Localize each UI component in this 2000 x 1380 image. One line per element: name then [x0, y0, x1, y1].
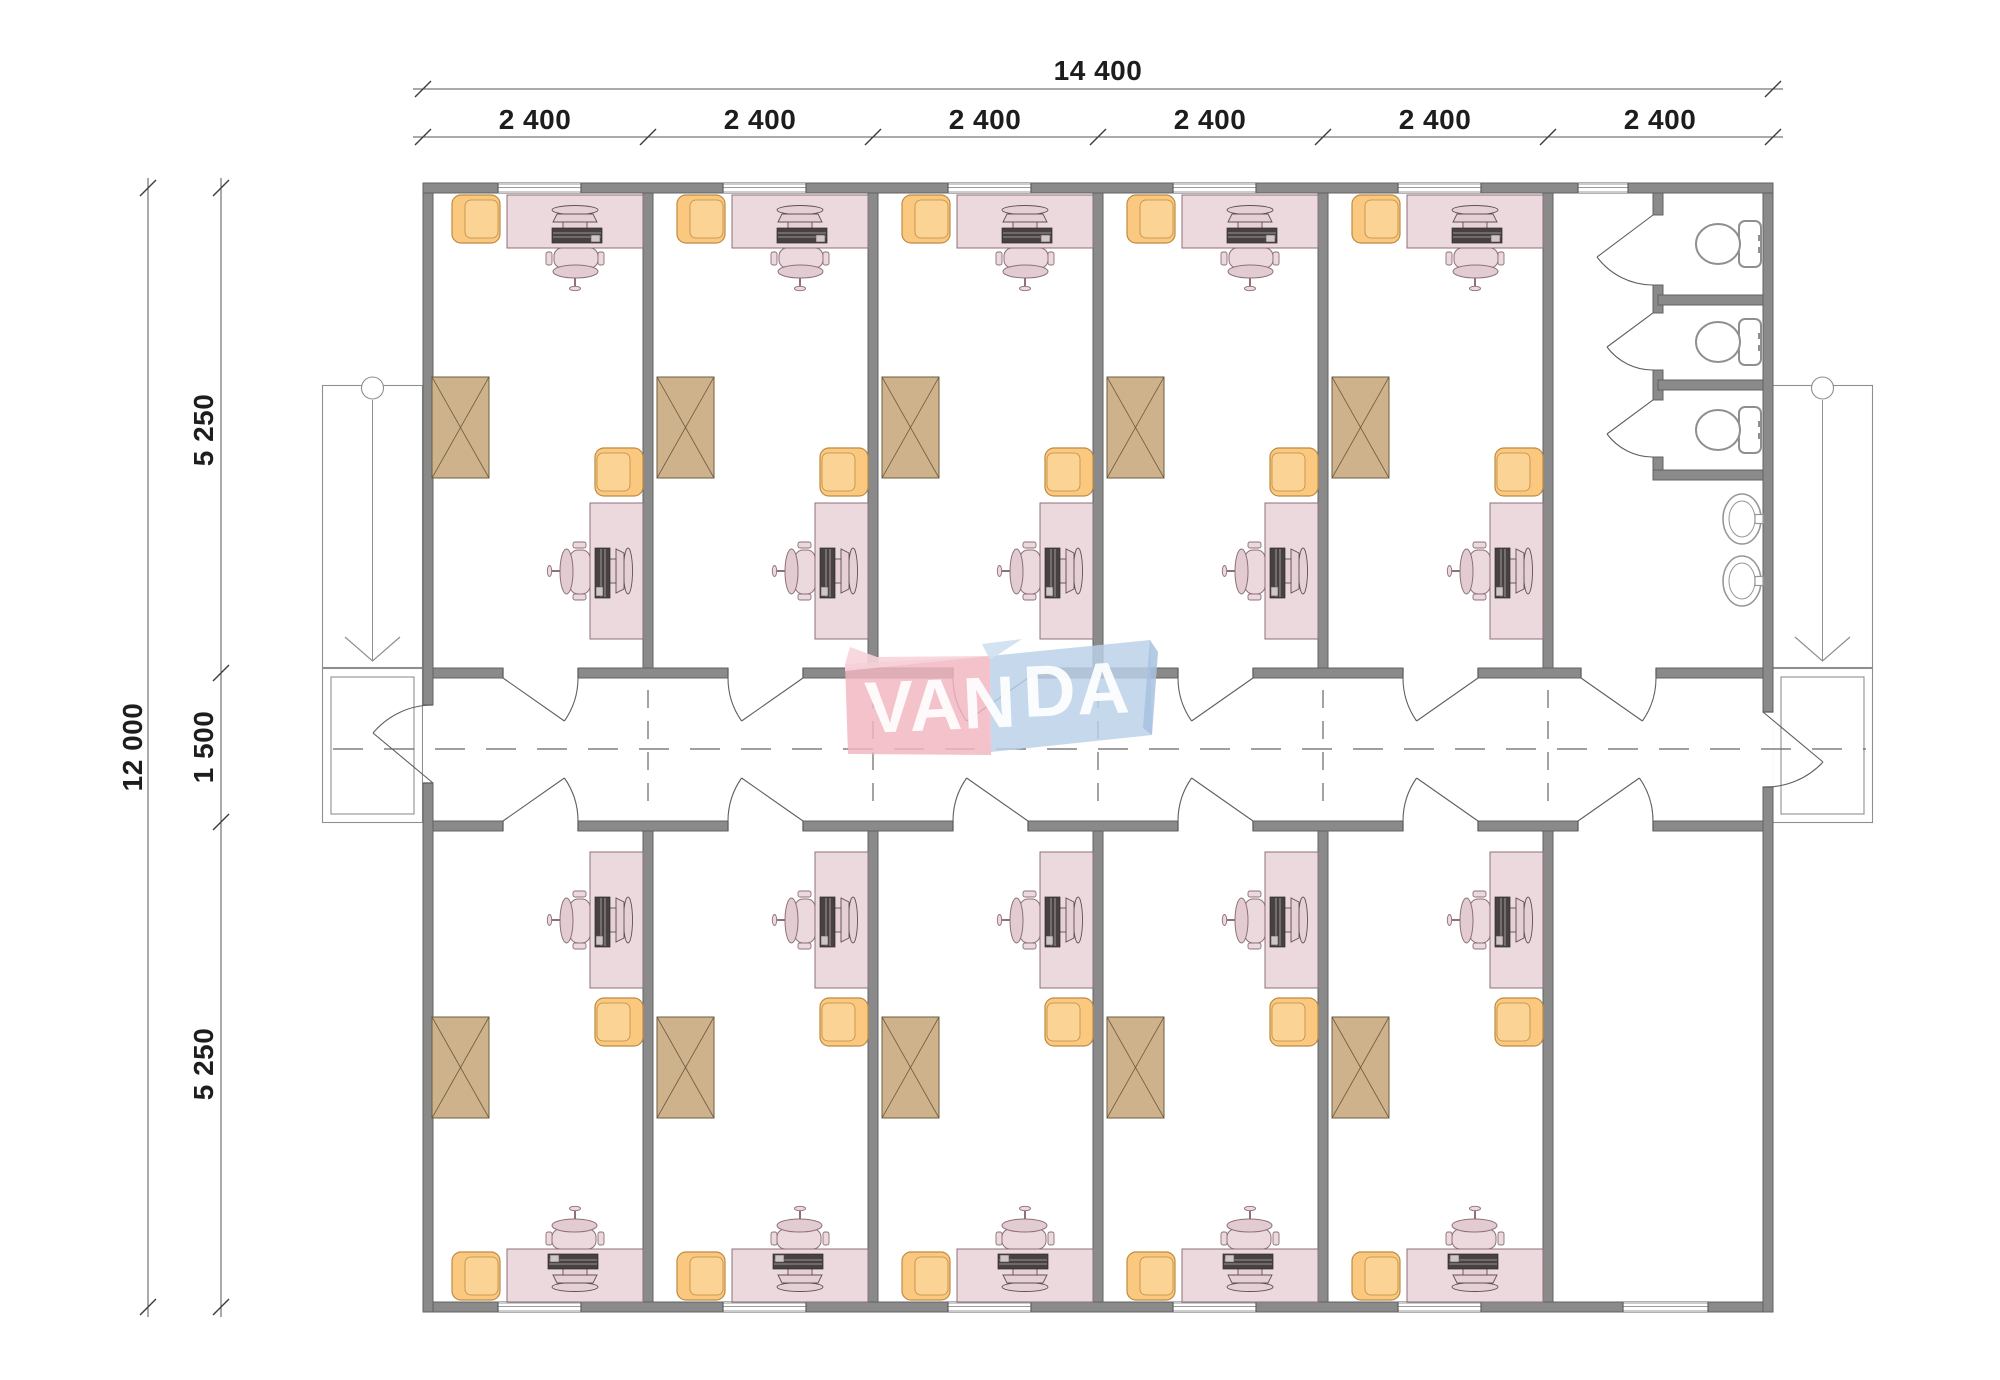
door-swing-room [1578, 778, 1653, 821]
wall [578, 668, 728, 678]
wall [1028, 821, 1178, 831]
wall [1253, 668, 1403, 678]
wall [1253, 821, 1403, 831]
toilet [1696, 407, 1761, 453]
wall [868, 831, 878, 1302]
desk-workstation [997, 503, 1093, 639]
logo-text-da: DA [1021, 647, 1132, 733]
storage-cabinet [432, 1017, 489, 1118]
toilet [1696, 319, 1761, 365]
door-opening [1403, 668, 1478, 678]
wall [1093, 193, 1103, 668]
wall [1318, 193, 1328, 668]
office-room-top-2 [657, 195, 868, 639]
window [498, 1302, 581, 1312]
wall [423, 1302, 1773, 1312]
wall [1658, 295, 1763, 305]
window [1398, 183, 1481, 193]
door-opening [423, 705, 433, 783]
desk-workstation [772, 852, 868, 988]
door-opening [953, 821, 1028, 831]
bathroom-fixtures [1696, 221, 1763, 606]
office-room-bottom-5 [1332, 852, 1543, 1302]
door-swing [1403, 678, 1478, 721]
staircase-right [1773, 377, 1873, 668]
wall [1763, 193, 1773, 712]
door-swing [503, 678, 578, 721]
sink [1723, 494, 1763, 544]
floor-plan-page: 14 400 2 400 2 400 2 400 2 400 2 400 2 4… [0, 0, 2000, 1380]
door-swing-washroom [1581, 678, 1656, 721]
door-swing [728, 678, 803, 721]
desk-workstation [1447, 503, 1543, 639]
wall [1478, 668, 1581, 678]
door-swing [1178, 678, 1253, 721]
door-swing [503, 778, 578, 821]
office-room-top-3 [882, 195, 1093, 639]
dimension-top-segment: 2 400 [1174, 104, 1247, 135]
door-swing [1178, 778, 1253, 821]
wall [1543, 831, 1553, 1302]
armchair [1352, 195, 1400, 243]
desk-workstation [1407, 1206, 1543, 1302]
storage-cabinet [1332, 1017, 1389, 1118]
dimension-top-segment: 2 400 [1399, 104, 1472, 135]
door-opening [1178, 668, 1253, 678]
door-swing-stall [1607, 313, 1653, 370]
armchair [1495, 448, 1543, 496]
wall [433, 821, 503, 831]
door-opening [503, 821, 578, 831]
desk-workstation [1182, 1206, 1318, 1302]
dimension-left-total: 12 000 [117, 703, 148, 792]
armchair [1127, 195, 1175, 243]
office-room-bottom-4 [1107, 852, 1318, 1302]
window [1173, 183, 1256, 193]
wall [1653, 821, 1763, 831]
desk-workstation [1222, 852, 1318, 988]
armchair [1045, 448, 1093, 496]
wall [423, 183, 1773, 193]
storage-cabinet [432, 377, 489, 478]
door-swing [1403, 778, 1478, 821]
desk-workstation [732, 1206, 868, 1302]
window [1578, 183, 1628, 193]
staircase-left [323, 377, 423, 668]
wall [868, 193, 878, 668]
wall [1478, 821, 1578, 831]
window [948, 1302, 1031, 1312]
door-opening [728, 821, 803, 831]
armchair [677, 1252, 725, 1300]
desk-workstation [957, 1206, 1093, 1302]
desk-workstation [732, 195, 868, 291]
landing-right [1773, 669, 1873, 823]
armchair [1352, 1252, 1400, 1300]
wall [1543, 193, 1553, 668]
storage-cabinet [1332, 377, 1389, 478]
armchair [595, 448, 643, 496]
desk-workstation [1447, 852, 1543, 988]
wall [433, 668, 503, 678]
landing-left [323, 669, 423, 823]
desk-workstation [547, 852, 643, 988]
wall [1653, 193, 1663, 215]
door-opening [503, 668, 578, 678]
dimension-left-segment: 5 250 [188, 1028, 219, 1101]
armchair [820, 448, 868, 496]
sink [1723, 556, 1763, 606]
door-swing-stall [1597, 215, 1653, 285]
wall [643, 831, 653, 1302]
dimension-left-segment: 5 250 [188, 394, 219, 467]
window [948, 183, 1031, 193]
office-room-top-1 [432, 195, 643, 639]
dimension-top-segment: 2 400 [724, 104, 797, 135]
desk-workstation [507, 195, 643, 291]
storage-cabinet [1107, 377, 1164, 478]
wall [1656, 668, 1763, 678]
armchair [452, 1252, 500, 1300]
storage-cabinet [882, 1017, 939, 1118]
office-room-bottom-2 [657, 852, 868, 1302]
dimension-top-total: 14 400 [1054, 55, 1143, 86]
desk-workstation [507, 1206, 643, 1302]
desk-workstation [1407, 195, 1543, 291]
window [1173, 1302, 1256, 1312]
window [723, 183, 806, 193]
armchair [1270, 998, 1318, 1046]
vanda-logo: VAN DA [845, 639, 1158, 755]
window [1398, 1302, 1481, 1312]
office-room-top-5 [1332, 195, 1543, 639]
door-swing-stall [1607, 400, 1653, 457]
door-opening [728, 668, 803, 678]
logo-text-van: VAN [863, 661, 1018, 749]
walls [423, 183, 1773, 1312]
wall [1653, 470, 1763, 480]
storage-cabinet [1107, 1017, 1164, 1118]
desk-workstation [547, 503, 643, 639]
floor-plan-svg: 14 400 2 400 2 400 2 400 2 400 2 400 2 4… [0, 0, 2000, 1380]
office-room-bottom-1 [432, 852, 643, 1302]
storage-cabinet [882, 377, 939, 478]
storage-cabinet [657, 377, 714, 478]
wall [1763, 787, 1773, 1312]
door-opening [1178, 821, 1253, 831]
door-swing [728, 778, 803, 821]
office-room-bottom-3 [882, 852, 1093, 1302]
armchair [1045, 998, 1093, 1046]
armchair [902, 195, 950, 243]
wall [803, 821, 953, 831]
wall [578, 821, 728, 831]
door-opening [1581, 668, 1656, 678]
armchair [902, 1252, 950, 1300]
storage-cabinet [657, 1017, 714, 1118]
desk-workstation [772, 503, 868, 639]
desk-workstation [1222, 503, 1318, 639]
toilet [1696, 221, 1761, 267]
armchair [452, 195, 500, 243]
wall [1318, 831, 1328, 1302]
door-opening [1578, 821, 1653, 831]
armchair [1495, 998, 1543, 1046]
armchair [595, 998, 643, 1046]
dimension-top-segment: 2 400 [1624, 104, 1697, 135]
door-opening [1403, 821, 1478, 831]
armchair [820, 998, 868, 1046]
door-swing [953, 778, 1028, 821]
desk-workstation [997, 852, 1093, 988]
dimension-top-segment: 2 400 [949, 104, 1022, 135]
window [1623, 1302, 1708, 1312]
dimension-left-segment: 1 500 [188, 711, 219, 784]
wall [643, 193, 653, 668]
window [723, 1302, 806, 1312]
armchair [677, 195, 725, 243]
wall [1093, 831, 1103, 1302]
wall [1658, 380, 1763, 390]
armchair [1127, 1252, 1175, 1300]
desk-workstation [1182, 195, 1318, 291]
armchair [1270, 448, 1318, 496]
dimension-top-segment: 2 400 [499, 104, 572, 135]
desk-workstation [957, 195, 1093, 291]
office-room-top-4 [1107, 195, 1318, 639]
window [498, 183, 581, 193]
